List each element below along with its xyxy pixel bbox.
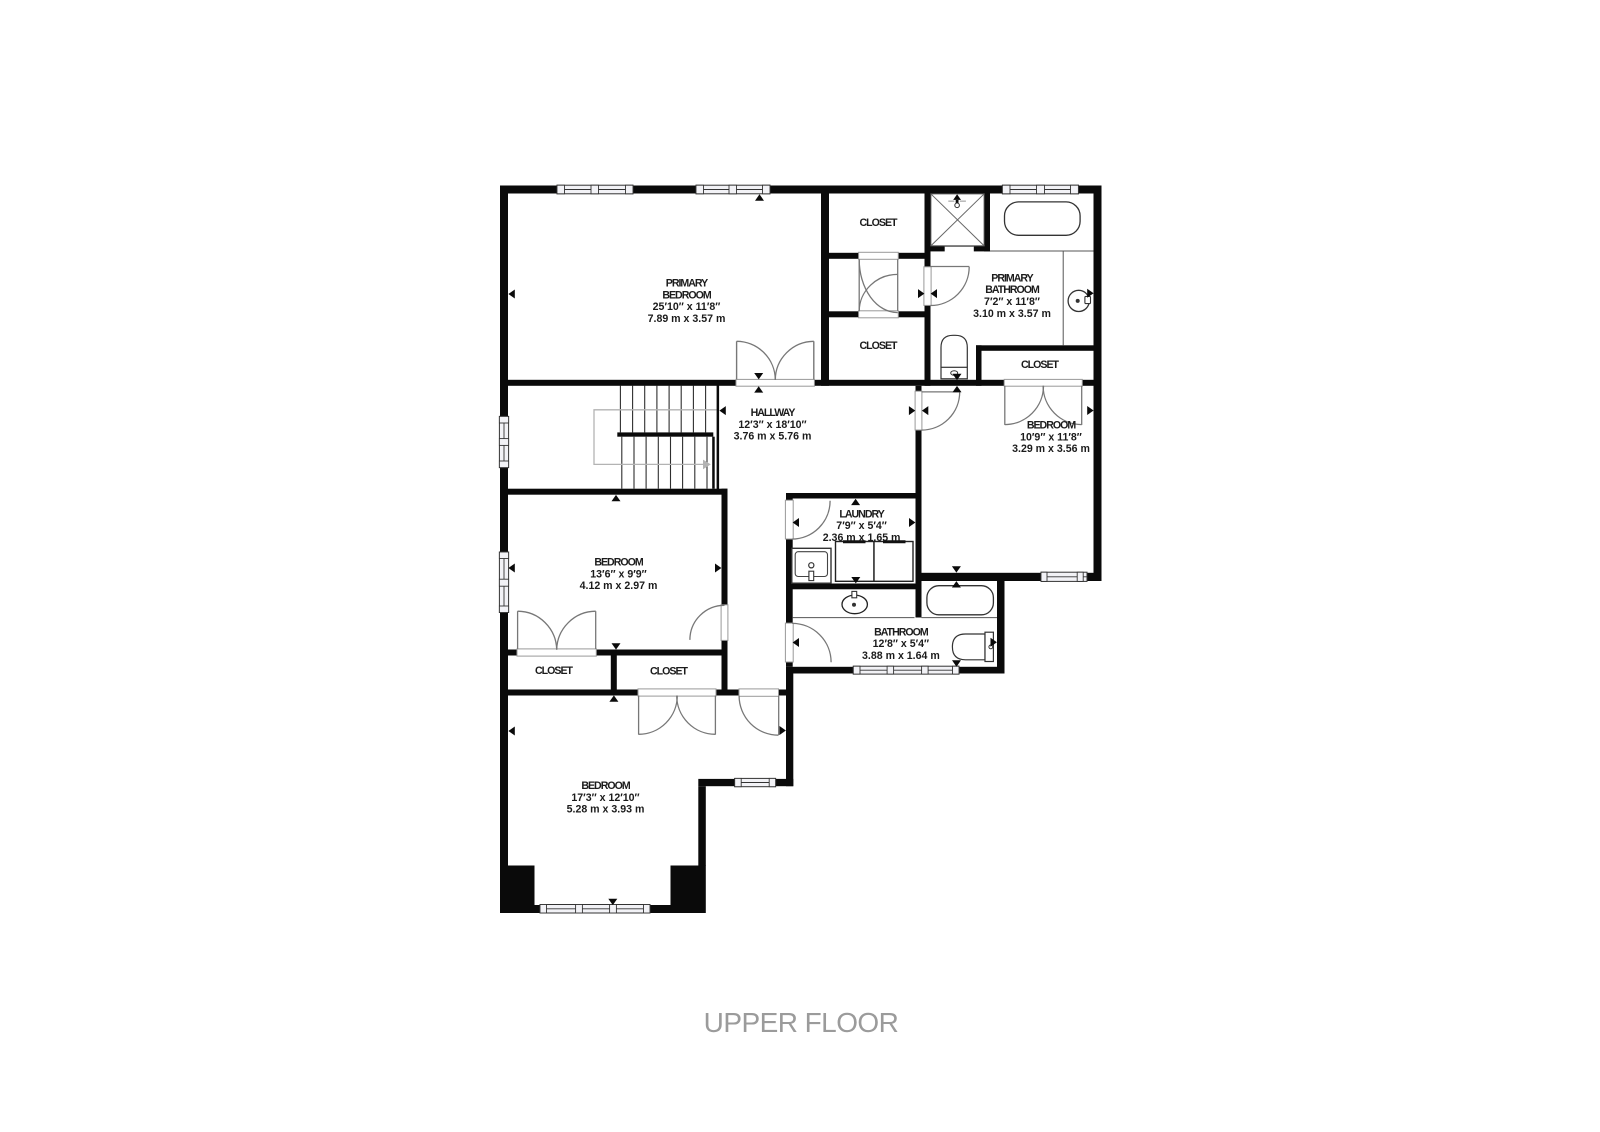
svg-text:3.88 m x 1.64 m: 3.88 m x 1.64 m [862, 650, 940, 662]
svg-text:12′8″ x 5′4″: 12′8″ x 5′4″ [873, 638, 929, 650]
svg-text:25′10″ x 11′8″: 25′10″ x 11′8″ [653, 301, 721, 313]
svg-text:10′9″ x 11′8″: 10′9″ x 11′8″ [1020, 431, 1082, 443]
svg-text:17′3″ x 12′10″: 17′3″ x 12′10″ [571, 792, 639, 804]
svg-text:5.28 m x 3.93 m: 5.28 m x 3.93 m [567, 804, 645, 816]
svg-text:3.10 m x 3.57 m: 3.10 m x 3.57 m [973, 308, 1051, 320]
svg-text:12′3″ x 18′10″: 12′3″ x 18′10″ [738, 419, 806, 431]
svg-text:2.36 m x 1.65 m: 2.36 m x 1.65 m [823, 532, 901, 544]
svg-text:CLOSET: CLOSET [535, 665, 573, 677]
svg-text:BEDROOM: BEDROOM [1027, 420, 1076, 432]
svg-text:LAUNDRY: LAUNDRY [839, 508, 884, 520]
svg-text:UPPER FLOOR: UPPER FLOOR [704, 1007, 899, 1038]
svg-text:7.89 m x 3.57 m: 7.89 m x 3.57 m [648, 313, 726, 325]
svg-text:7′2″ x 11′8″: 7′2″ x 11′8″ [984, 296, 1040, 308]
svg-text:BATHROOM: BATHROOM [985, 284, 1040, 296]
svg-text:7′9″ x 5′4″: 7′9″ x 5′4″ [836, 520, 887, 532]
svg-text:CLOSET: CLOSET [860, 217, 898, 229]
svg-text:BATHROOM: BATHROOM [874, 626, 929, 638]
svg-text:PRIMARY: PRIMARY [991, 272, 1033, 284]
svg-text:CLOSET: CLOSET [1021, 359, 1059, 371]
svg-text:HALLWAY: HALLWAY [751, 407, 796, 419]
svg-text:3.29 m x 3.56 m: 3.29 m x 3.56 m [1012, 443, 1090, 455]
svg-text:3.76 m x 5.76 m: 3.76 m x 5.76 m [734, 431, 812, 443]
svg-text:PRIMARY: PRIMARY [666, 278, 708, 290]
svg-text:CLOSET: CLOSET [650, 666, 688, 678]
svg-text:4.12 m x 2.97 m: 4.12 m x 2.97 m [580, 580, 658, 592]
svg-text:13′6″ x 9′9″: 13′6″ x 9′9″ [590, 568, 646, 580]
svg-text:BEDROOM: BEDROOM [594, 557, 643, 569]
svg-text:BEDROOM: BEDROOM [662, 289, 711, 301]
svg-text:BEDROOM: BEDROOM [581, 780, 630, 792]
svg-text:CLOSET: CLOSET [860, 340, 898, 352]
